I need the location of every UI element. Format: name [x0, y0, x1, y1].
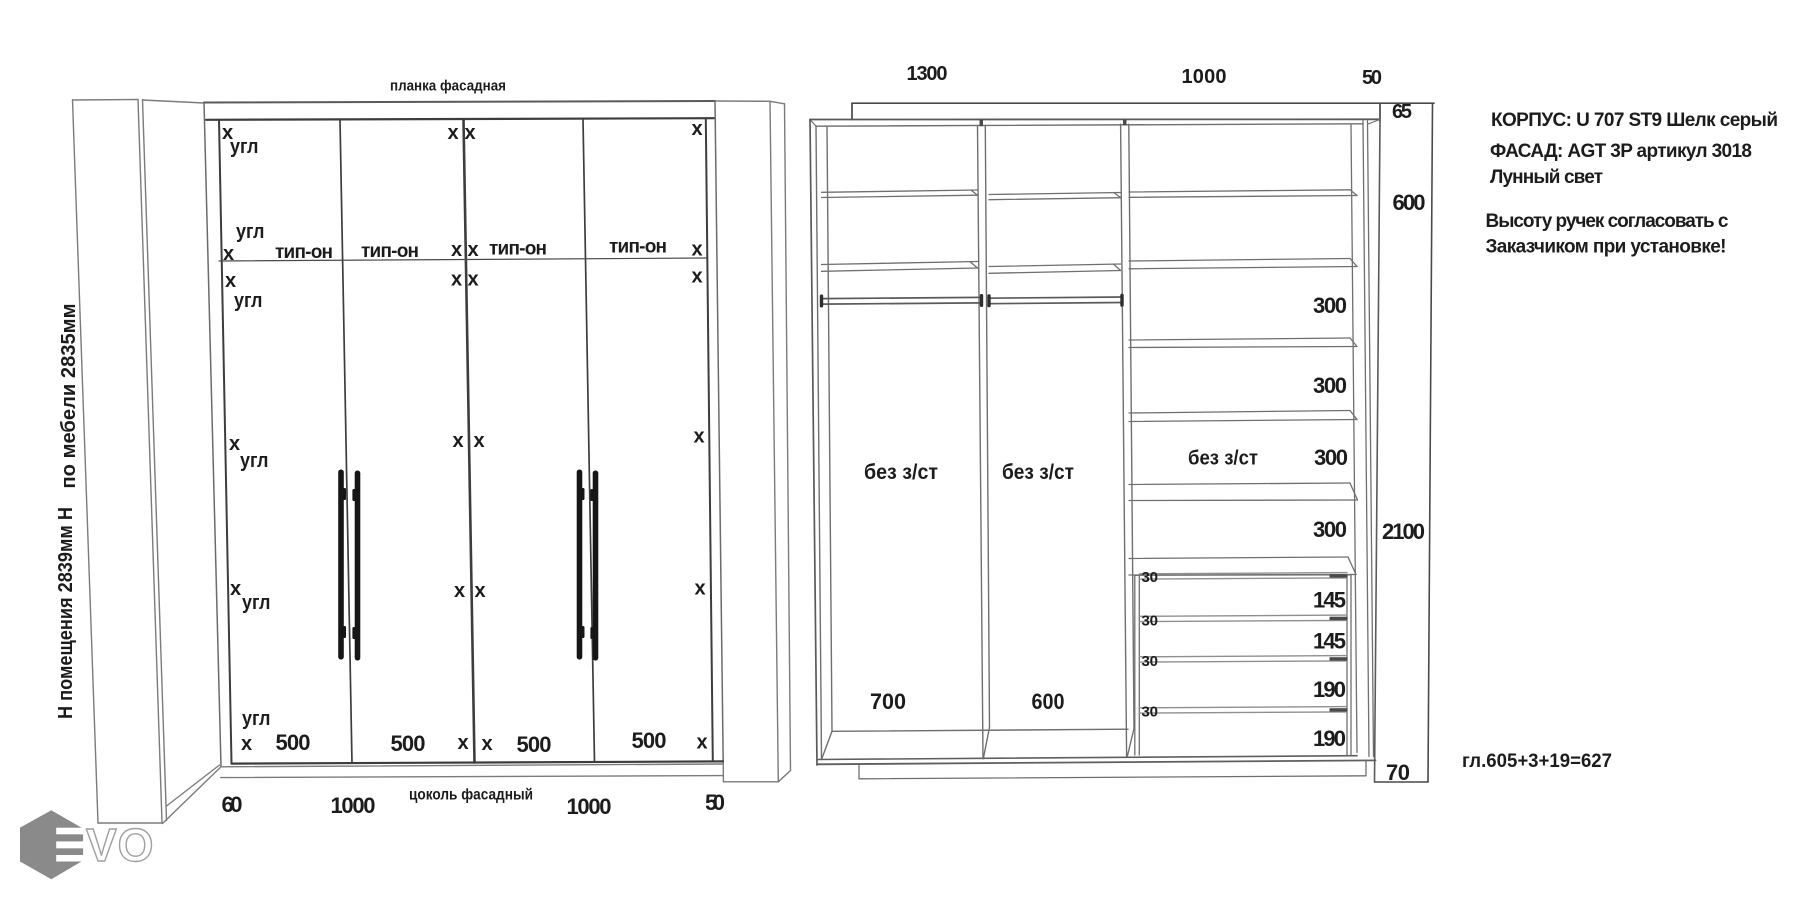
svg-text:2100: 2100	[1382, 519, 1425, 544]
svg-text:x: x	[223, 243, 234, 265]
svg-text:30: 30	[1142, 704, 1159, 721]
svg-text:x: x	[451, 239, 462, 261]
svg-text:300: 300	[1313, 293, 1347, 318]
svg-text:60: 60	[222, 792, 243, 817]
svg-text:планка фасадная: планка фасадная	[390, 78, 506, 95]
svg-text:угл: угл	[236, 221, 265, 243]
svg-text:гл.605+3+19=627: гл.605+3+19=627	[1462, 751, 1612, 772]
svg-text:без з/ст: без з/ст	[864, 461, 938, 484]
svg-text:тип-он: тип-он	[275, 242, 333, 263]
svg-text:600: 600	[1032, 689, 1065, 714]
svg-text:x: x	[691, 118, 702, 140]
svg-text:65: 65	[1392, 101, 1412, 123]
svg-text:x: x	[225, 270, 236, 292]
svg-text:цоколь фасадный: цоколь фасадный	[409, 787, 533, 804]
svg-text:Лунный свет: Лунный свет	[1490, 167, 1603, 188]
svg-text:190: 190	[1313, 677, 1346, 702]
svg-text:50: 50	[1362, 67, 1382, 89]
svg-text:x: x	[474, 580, 485, 602]
svg-text:145: 145	[1313, 629, 1346, 654]
svg-text:500: 500	[517, 732, 552, 757]
svg-text:без з/ст: без з/ст	[1002, 461, 1074, 484]
svg-text:по мебели 2835мм: по мебели 2835мм	[58, 304, 80, 489]
svg-text:угл: угл	[240, 450, 269, 472]
svg-text:300: 300	[1314, 445, 1348, 470]
svg-text:500: 500	[391, 731, 426, 756]
svg-text:тип-он: тип-он	[609, 237, 667, 258]
svg-text:30: 30	[1142, 569, 1159, 586]
svg-text:x: x	[693, 426, 704, 448]
svg-text:300: 300	[1313, 373, 1347, 398]
svg-text:x: x	[230, 578, 241, 600]
svg-text:тип-он: тип-он	[489, 239, 547, 260]
svg-text:КОРПУС: U 707 ST9 Шелк серый: КОРПУС: U 707 ST9 Шелк серый	[1491, 110, 1778, 131]
svg-text:ФАСАД: AGT 3P артикул 3018: ФАСАД: AGT 3P артикул 3018	[1490, 141, 1752, 162]
svg-text:x: x	[451, 269, 462, 291]
svg-text:700: 700	[870, 689, 906, 714]
svg-text:x: x	[467, 269, 478, 291]
svg-text:угл: угл	[234, 290, 263, 312]
svg-text:угл: угл	[242, 708, 271, 730]
svg-text:1300: 1300	[907, 63, 948, 85]
svg-text:300: 300	[1313, 517, 1347, 542]
svg-text:190: 190	[1313, 726, 1346, 751]
svg-text:50: 50	[705, 790, 725, 815]
svg-text:145: 145	[1313, 588, 1346, 613]
svg-text:Заказчиком при установке!: Заказчиком при установке!	[1486, 237, 1727, 258]
svg-text:x: x	[447, 122, 458, 144]
svg-text:Высоту ручек согласовать с: Высоту ручек согласовать с	[1486, 211, 1729, 232]
svg-text:500: 500	[632, 728, 667, 753]
svg-text:x: x	[241, 733, 252, 755]
svg-text:1000: 1000	[331, 793, 376, 818]
svg-text:угл: угл	[230, 136, 259, 158]
svg-text:x: x	[457, 732, 468, 754]
svg-text:500: 500	[276, 730, 311, 755]
svg-text:без з/ст: без з/ст	[1188, 448, 1258, 470]
svg-text:x: x	[452, 430, 463, 452]
svg-text:x: x	[464, 122, 475, 144]
svg-text:x: x	[467, 239, 478, 261]
svg-text:1000: 1000	[1182, 66, 1227, 88]
svg-text:VO: VO	[86, 819, 154, 871]
svg-text:угл: угл	[242, 592, 271, 614]
svg-text:x: x	[454, 580, 465, 602]
svg-text:x: x	[694, 578, 705, 600]
svg-text:70: 70	[1386, 760, 1410, 785]
svg-text:x: x	[473, 430, 484, 452]
svg-text:600: 600	[1393, 190, 1426, 215]
svg-text:x: x	[481, 733, 492, 755]
svg-text:x: x	[691, 239, 702, 261]
svg-text:x: x	[691, 266, 702, 288]
svg-text:1000: 1000	[567, 794, 612, 819]
svg-text:x: x	[696, 732, 707, 754]
svg-text:тип-он: тип-он	[361, 241, 419, 262]
svg-text:Н помещения 2839мм Н: Н помещения 2839мм Н	[55, 507, 77, 719]
svg-text:30: 30	[1142, 653, 1159, 670]
svg-text:30: 30	[1142, 613, 1159, 630]
svg-text:x: x	[229, 433, 240, 455]
